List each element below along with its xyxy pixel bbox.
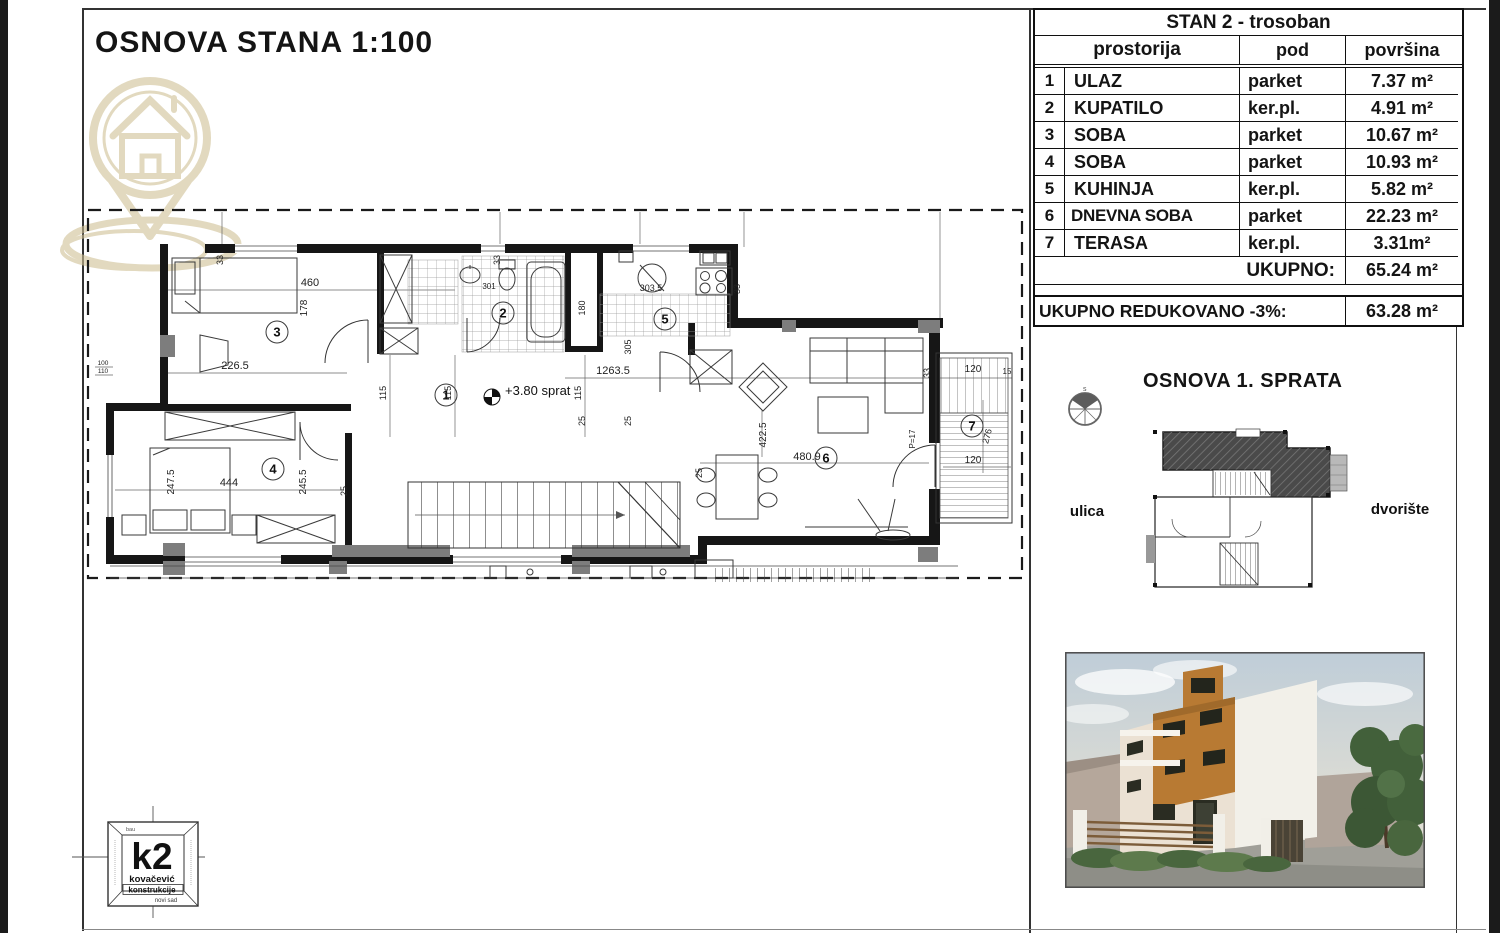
dim: 1263.5 xyxy=(596,365,630,377)
dim: 180 xyxy=(577,300,587,315)
dim: 15 xyxy=(1003,367,1012,376)
compass-icon: s xyxy=(1069,386,1101,425)
table-row: 5 KUHINJA ker.pl. 5.82 m² xyxy=(1035,176,1462,203)
table-row: 2 KUPATILO ker.pl. 4.91 m² xyxy=(1035,95,1462,122)
drawing-sheet: OSNOVA STANA 1:100 xyxy=(0,0,1500,933)
window xyxy=(185,555,281,564)
dim: 25 xyxy=(623,416,633,426)
dim: 25 xyxy=(694,468,704,478)
sofa xyxy=(810,338,923,383)
room-4: 4 xyxy=(269,462,277,477)
row-floor: parket xyxy=(1240,122,1346,149)
row-name: ULAZ xyxy=(1065,68,1240,95)
dim: 247.5 xyxy=(166,469,177,494)
row-num: 7 xyxy=(1035,230,1065,257)
floor-overview-plan: s xyxy=(1040,385,1380,600)
row-area: 7.37 m² xyxy=(1346,68,1458,95)
window xyxy=(106,455,114,517)
row-num: 3 xyxy=(1035,122,1065,149)
dim: 33 xyxy=(922,368,932,378)
bed xyxy=(150,448,230,533)
row-area: 22.23 m² xyxy=(1346,203,1458,230)
row-name: SOBA xyxy=(1065,149,1240,176)
dim: 480.9 xyxy=(793,451,821,463)
living-room-furniture xyxy=(697,338,923,540)
row-num: 1 xyxy=(1035,68,1065,95)
mini-balcony xyxy=(1330,455,1347,491)
row-floor: parket xyxy=(1240,68,1346,95)
dim: 25 xyxy=(577,416,587,426)
table-header-row: prostorija pod površina xyxy=(1035,36,1462,68)
row-area: 3.31m² xyxy=(1346,230,1458,257)
row-floor: parket xyxy=(1240,203,1346,230)
reduced-row: UKUPNO REDUKOVANO -3%: 63.28 m² xyxy=(1035,295,1462,325)
dim: 226.5 xyxy=(221,360,249,372)
room-table: STAN 2 - trosoban prostorija pod površin… xyxy=(1033,8,1464,327)
dim: 115 xyxy=(443,386,453,400)
table-row: 1 ULAZ parket 7.37 m² xyxy=(1035,68,1462,95)
dim: 33 xyxy=(215,255,225,265)
building-render xyxy=(1065,652,1425,888)
level-label: +3.80 sprat xyxy=(505,383,571,398)
railing-comb xyxy=(712,568,872,582)
logo-city: novi sad xyxy=(155,898,177,904)
dim: 305 xyxy=(623,339,633,354)
row-floor: parket xyxy=(1240,149,1346,176)
dim: P=17 xyxy=(908,429,917,448)
logo-line2: konstrukcije xyxy=(128,886,176,895)
col-header-floor: pod xyxy=(1240,36,1346,64)
floor-plan: +3.80 sprat 1 2 3 4 5 6 7 460 178 226.5 … xyxy=(85,205,1030,590)
dim: 33 xyxy=(732,284,742,294)
row-floor: ker.pl. xyxy=(1240,230,1346,257)
row-name: KUPATILO xyxy=(1065,95,1240,122)
row-num: 4 xyxy=(1035,149,1065,176)
reduced-label: UKUPNO REDUKOVANO -3%: xyxy=(1035,297,1346,325)
row-name: DNEVNA SOBA xyxy=(1065,203,1240,230)
dim: 115 xyxy=(573,386,583,400)
dim: 422.5 xyxy=(758,422,769,447)
reduced-value: 63.28 m² xyxy=(1346,297,1458,325)
row-floor: ker.pl. xyxy=(1240,176,1346,203)
dim: 178 xyxy=(299,299,310,316)
photo-right-edge xyxy=(1489,0,1500,933)
row-area: 4.91 m² xyxy=(1346,95,1458,122)
dim: 120 xyxy=(965,364,982,375)
cloud xyxy=(1317,682,1413,706)
bedroom3-furniture xyxy=(172,258,297,372)
table-row: 7 TERASA ker.pl. 3.31m² xyxy=(1035,230,1462,257)
table-spacer xyxy=(1035,285,1462,295)
col-header-room: prostorija xyxy=(1035,36,1240,64)
room-2: 2 xyxy=(499,306,506,321)
table-title: STAN 2 - trosoban xyxy=(1035,10,1462,36)
dim: 460 xyxy=(301,277,319,289)
page-title: OSNOVA STANA 1:100 xyxy=(95,26,433,60)
dim: 120 xyxy=(965,455,982,466)
coffee-table xyxy=(818,397,868,433)
logo-main: k2 xyxy=(131,836,172,877)
window xyxy=(633,244,689,253)
dim: 245.5 xyxy=(298,469,309,494)
row-floor: ker.pl. xyxy=(1240,95,1346,122)
row-area: 10.67 m² xyxy=(1346,122,1458,149)
window xyxy=(453,555,561,564)
table-row: 3 SOBA parket 10.67 m² xyxy=(1035,122,1462,149)
dim: 301 xyxy=(482,282,496,291)
window xyxy=(481,244,505,253)
dim: 110 xyxy=(98,368,109,375)
mini-plan xyxy=(1146,429,1347,587)
dim: 115 xyxy=(378,386,388,400)
dim: 25 xyxy=(339,486,349,496)
total-value: 65.24 m² xyxy=(1346,257,1458,284)
compass-letter: s xyxy=(1083,386,1087,393)
row-name: TERASA xyxy=(1065,230,1240,257)
row-name: SOBA xyxy=(1065,122,1240,149)
row-area: 5.82 m² xyxy=(1346,176,1458,203)
tree xyxy=(1345,724,1425,856)
room-7: 7 xyxy=(968,419,975,434)
kitchen-fixtures xyxy=(619,251,732,295)
bed xyxy=(172,258,297,313)
dim: 33 xyxy=(492,255,502,265)
table-row: 4 SOBA parket 10.93 m² xyxy=(1035,149,1462,176)
bedroom4-furniture xyxy=(122,448,256,535)
row-num: 6 xyxy=(1035,203,1065,230)
armchair xyxy=(739,363,787,411)
nightstand xyxy=(122,515,146,535)
col-header-area: površina xyxy=(1346,36,1458,64)
level-marker-icon xyxy=(484,389,500,405)
dim: 303.5 xyxy=(640,283,663,293)
table-row: 6 DNEVNA SOBA parket 22.23 m² xyxy=(1035,203,1462,230)
row-area: 10.93 m² xyxy=(1346,149,1458,176)
dim: 100 xyxy=(98,360,109,367)
logo-top-label: bau xyxy=(126,827,135,833)
row-num: 2 xyxy=(1035,95,1065,122)
window xyxy=(235,244,297,253)
total-label: UKUPNO: xyxy=(1035,257,1346,284)
sheet-border-bottom xyxy=(82,929,1486,930)
mini-stairs-upper xyxy=(1215,472,1269,495)
logo-line1: kovačević xyxy=(129,874,174,885)
room-3: 3 xyxy=(273,325,280,340)
room-5: 5 xyxy=(661,312,668,327)
total-row: UKUPNO: 65.24 m² xyxy=(1035,257,1462,285)
nightstand xyxy=(232,515,256,535)
terrace xyxy=(936,353,1012,523)
row-name: KUHINJA xyxy=(1065,176,1240,203)
dim: 444 xyxy=(220,477,238,489)
row-num: 5 xyxy=(1035,176,1065,203)
room-6: 6 xyxy=(822,451,829,466)
photo-left-edge xyxy=(0,0,8,933)
dining-table xyxy=(716,455,758,519)
stairs xyxy=(408,482,680,548)
k2-company-logo: bau k2 kovačević konstrukcije novi sad xyxy=(70,798,210,920)
